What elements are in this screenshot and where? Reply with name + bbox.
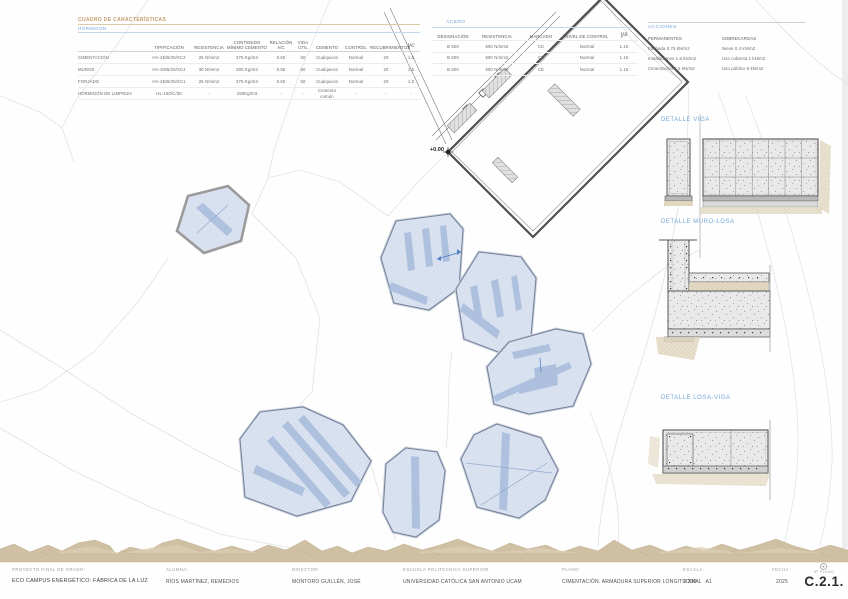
student-label: ALUMNA:: [166, 567, 188, 572]
table-cell: CE: [520, 67, 562, 72]
table-cell: Nieve 0.4 kN/m2: [722, 46, 796, 51]
table-cell: γs: [612, 31, 636, 39]
table-cell: CEMENTO: [312, 45, 342, 50]
table-cell: CE: [520, 55, 562, 60]
table-cell: B 500: [432, 67, 474, 72]
foundation-slab-6: [383, 448, 445, 537]
table-cell: Cimentación 1.5 kN/m2: [648, 66, 722, 71]
table-cell: 50: [294, 79, 312, 84]
actions-table: ACCIONES PERMANENTES SOBRECARGAS Fachada…: [648, 22, 806, 74]
table-cell: SOBRECARGAS: [722, 36, 796, 41]
table-row: B 500 500 N/mm2 CE Normal 1.15: [432, 53, 638, 65]
table-cell: HL-150/C/30: [146, 91, 192, 96]
table-cell: 150Kg/m3: [226, 91, 268, 96]
date-value: 2025: [776, 579, 788, 585]
table-cell: B 500: [432, 44, 474, 49]
table-cell: 300 Kg/m3: [226, 67, 268, 72]
table-cell: FORJADO: [78, 79, 146, 84]
scale-ratio: 1:200: [683, 579, 697, 585]
table-header-row: TIPIFICACIÓN RESISTENCIA CONTENIDO MÍNIM…: [78, 34, 420, 52]
table-cell: 500 N/mm2: [474, 55, 520, 60]
table-cell: MARCADO: [520, 34, 562, 39]
table-header-row: DESIGNACIÓN RESISTENCIA MARCADO NIVEL DE…: [432, 28, 638, 41]
table-cell: RESISTENCIA: [192, 45, 226, 50]
school-name: UNIVERSIDAD CATÓLICA SAN ANTONIO UCAM: [403, 579, 522, 585]
table-cell: Normal: [562, 55, 612, 60]
foundation-slab-5: [240, 407, 371, 516]
table-cell: 20: [370, 79, 402, 84]
table-row: B 500 500 N/mm2 CE Normal 1.15: [432, 41, 638, 53]
table-cell: 50: [294, 67, 312, 72]
steel-table: ACERO DESIGNACIÓN RESISTENCIA MARCADO NI…: [432, 20, 638, 76]
table-cell: NIVEL DE CONTROL: [562, 34, 612, 39]
table-cell: γc: [402, 42, 420, 50]
detail-losa-viga-label: DETALLE LOSA-VIGA: [661, 395, 731, 401]
table-cell: MUROS: [78, 67, 146, 72]
director-name: MONTORO GUILLÉN, JOSÉ: [292, 579, 361, 585]
table-cell: Cemento común: [312, 88, 342, 98]
table-row: HORMIGÓN DE LIMPIEZA HL-150/C/30 - 150Kg…: [78, 88, 420, 100]
table-cell: Cualquiera: [312, 67, 342, 72]
table-title: CUADRO DE CARACTERÍSTICAS: [78, 17, 420, 25]
table-row: B 500 500 N/mm2 CE Normal 1.15: [432, 64, 638, 76]
table-cell: 0.55: [268, 67, 294, 72]
table-cell: 1.5: [402, 55, 420, 60]
table-row: CIMENTACIÓN HA-25/B/20/XC2 25 N/mm2 275 …: [78, 52, 420, 64]
table-cell: CIMENTACIÓN: [78, 55, 146, 60]
table-cell: -: [192, 91, 226, 96]
table-cell: PERMANENTES: [648, 36, 722, 41]
foundation-slab-2: [381, 214, 463, 310]
table-cell: 1.5: [402, 79, 420, 84]
table-cell: DESIGNACIÓN: [432, 34, 474, 39]
table-subtitle: HORMIGÓN: [78, 25, 420, 33]
table-cell: CONTROL: [342, 45, 370, 50]
sheet-number: C.2.1.: [798, 574, 844, 589]
detail-viga-drawing: [664, 139, 831, 214]
table-cell: -: [294, 91, 312, 96]
detail-muro-losa-label: DETALLE MURO-LOSA: [661, 219, 735, 225]
table-cell: -: [370, 91, 402, 96]
project-label: PROYECTO FINAL DE GRADO:: [12, 567, 85, 572]
table-cell: 500 N/mm2: [474, 67, 520, 72]
table-header-row: PERMANENTES SOBRECARGAS: [648, 34, 806, 44]
table-cell: 0.60: [268, 55, 294, 60]
table-title: ACCIONES: [648, 22, 806, 34]
table-cell: RELACIÓN A/C: [268, 40, 294, 50]
detail-losa-viga-drawing: [648, 420, 770, 500]
table-cell: VIDA ÚTIL: [294, 40, 312, 50]
student-name: RÍOS MARTÍNEZ, REMEDIOS: [166, 579, 239, 585]
table-cell: 275 Kg/m3: [226, 55, 268, 60]
table-cell: Normal: [562, 67, 612, 72]
table-cell: 30 N/mm2: [192, 67, 226, 72]
table-cell: 20: [370, 55, 402, 60]
table-row: Fachada 0.75 kN/m2 Nieve 0.4 kN/m2: [648, 44, 806, 54]
drawing-sheet: CUADRO DE CARACTERÍSTICAS HORMIGÓN TIPIF…: [0, 0, 848, 599]
detail-muro-losa-drawing: [656, 240, 770, 360]
concrete-characteristics-table: CUADRO DE CARACTERÍSTICAS HORMIGÓN TIPIF…: [78, 17, 420, 100]
table-cell: 25 N/mm2: [192, 55, 226, 60]
table-cell: Normal: [342, 79, 370, 84]
scale-label: ESCALA:: [683, 567, 704, 572]
sheet-title-label: PLANO:: [562, 567, 580, 572]
table-cell: CE: [520, 44, 562, 49]
table-cell: CONTENIDO MÍNIMO CEMENTO: [226, 40, 268, 50]
table-cell: Cualquiera: [312, 55, 342, 60]
foundation-slab-1: [177, 186, 249, 253]
table-cell: B 500: [432, 55, 474, 60]
table-cell: HORMIGÓN DE LIMPIEZA: [78, 91, 146, 96]
table-cell: 25 N/mm2: [192, 79, 226, 84]
table-cell: 50: [294, 55, 312, 60]
table-cell: 0.60: [268, 79, 294, 84]
table-cell: -: [402, 91, 420, 96]
table-cell: RESISTENCIA: [474, 34, 520, 39]
terrain-band: [0, 539, 848, 562]
director-label: DIRECTOR:: [292, 567, 320, 572]
table-cell: 1.15: [612, 67, 636, 72]
table-cell: 1.5: [402, 67, 420, 72]
table-cell: -: [342, 91, 370, 96]
table-cell: Normal: [562, 44, 612, 49]
level-mark-text: +0.00: [402, 147, 444, 153]
table-cell: TIPIFICACIÓN: [146, 45, 192, 50]
table-cell: Uso público 5 kN/m2: [722, 66, 796, 71]
table-cell: 500 N/mm2: [474, 44, 520, 49]
table-cell: Instalaciones 1.6 kN/m2: [648, 56, 722, 61]
table-cell: -: [268, 91, 294, 96]
table-cell: 20: [370, 67, 402, 72]
table-row: FORJADO HA-25/B/20/XC1 25 N/mm2 275 Kg/m…: [78, 76, 420, 88]
scale-value: 1:200 A1: [683, 579, 712, 585]
table-cell: Normal: [342, 55, 370, 60]
table-cell: Normal: [342, 67, 370, 72]
table-title: ACERO: [432, 20, 632, 28]
table-row: Instalaciones 1.6 kN/m2 Uso cubierta 1 k…: [648, 54, 806, 64]
table-row: Cimentación 1.5 kN/m2 Uso público 5 kN/m…: [648, 64, 806, 74]
project-title: ECO CAMPUS ENERGÉTICO: FÁBRICA DE LA LUZ: [12, 578, 148, 584]
table-cell: 1.15: [612, 55, 636, 60]
table-cell: 275 Kg/m3: [226, 79, 268, 84]
table-row: MUROS HA-30/B/20/XC4 30 N/mm2 300 Kg/m3 …: [78, 64, 420, 76]
paper-format: A1: [706, 579, 713, 585]
foundation-slabs: [177, 186, 591, 537]
table-cell: Cualquiera: [312, 79, 342, 84]
table-cell: 1.15: [612, 44, 636, 49]
table-cell: HA-30/B/20/XC4: [146, 67, 192, 72]
date-label: FECHA:: [772, 567, 790, 572]
table-cell: Uso cubierta 1 kN/m2: [722, 56, 796, 61]
detail-viga-label: DETALLE VIGA: [661, 117, 710, 123]
sheet-title: CIMENTACIÓN. ARMADURA SUPERIOR LONGITUDI…: [562, 579, 702, 585]
table-cell: HA-25/B/20/XC2: [146, 55, 192, 60]
foundation-slab-7: [461, 424, 558, 518]
school-label: ESCUELA POLITÉCNICA SUPERIOR: [403, 567, 489, 572]
table-cell: RECUBRIMIENTOS: [370, 45, 402, 50]
table-cell: Fachada 0.75 kN/m2: [648, 46, 722, 51]
table-cell: HA-25/B/20/XC1: [146, 79, 192, 84]
